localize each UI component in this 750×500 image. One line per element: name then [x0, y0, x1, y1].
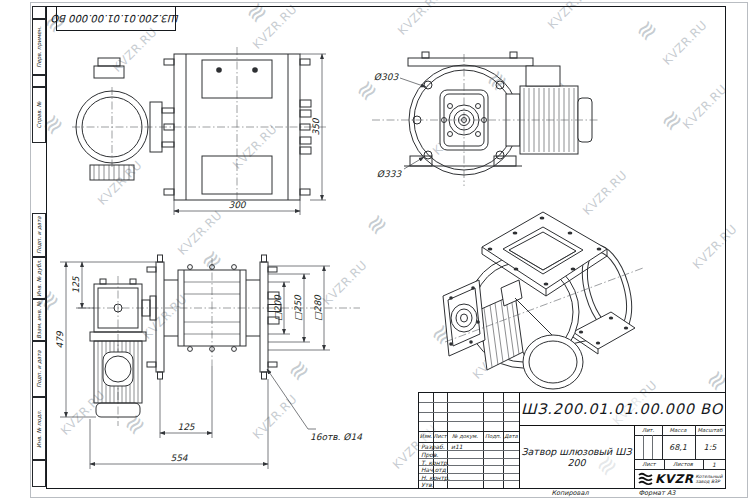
margin-cell-podp-data-1: Подп. и дата [32, 213, 46, 257]
brand-name: KVZR [655, 472, 694, 486]
margin-cell-inv-dubl: Инв. № дубл. [32, 257, 46, 299]
dim-bolt-square-250: □250 [293, 294, 303, 321]
gearmotor-side [76, 58, 174, 180]
dim-flange-square-280: □280 [313, 294, 323, 321]
corner-stamp-number: ШЗ.200.01.01.00.000 ВО [52, 13, 179, 24]
format-label: Формат А3 [638, 489, 675, 497]
isometric-view-drawing [415, 192, 650, 392]
margin-cell-sprav-no: Справ. № [32, 87, 46, 143]
motor-end-view [506, 66, 592, 154]
dim-inner-diameter: Ø303 [374, 72, 400, 82]
title-block: Изм. Лист № докум. Подп. Дата Разраб. и1… [418, 392, 726, 489]
brand-subtitle: Котельный завод ВЗР [696, 474, 723, 484]
gearmotor-front [90, 279, 156, 417]
title-block-doc-number: ШЗ.200.01.01.00.000 ВО [519, 393, 725, 425]
copied-label: Копировал [551, 489, 588, 497]
role-razrab-doc: и11 [451, 443, 463, 450]
drawing-sheet: KVZR.RUKVZR.RUKVZR.RUKVZR.RUKVZR.RUKVZR.… [0, 0, 750, 500]
scale-value: 1:5 [704, 443, 717, 452]
margin-cell-empty [32, 460, 46, 487]
end-view-dimensions: Ø303 Ø333 [374, 72, 426, 179]
mass-value: 68,1 [669, 443, 687, 452]
product-title: Затвор шлюзовый ШЗ 200 [519, 425, 634, 488]
role-razrab: Разраб. [421, 443, 445, 450]
dim-gear-offset-125: 125 [71, 275, 81, 293]
dim-width-300: 300 [228, 200, 246, 210]
sheets-value: 1 [712, 461, 716, 468]
corner-stamp: ШЗ.200.01.01.00.000 ВО [56, 6, 176, 31]
dim-offset-125: 125 [177, 422, 195, 432]
col-sign: Подп. [485, 433, 501, 439]
margin-cell-vzam-inv: Взам. инв. № [32, 299, 46, 341]
side-view-dimensions: 300 350 [174, 54, 326, 215]
front-view-drawing: 125 479 125 554 □200 □250 □280 16отв. Ø1… [48, 236, 378, 478]
col-date: Дата [504, 433, 518, 439]
centerlines [78, 258, 360, 426]
lit-label: Лит. [642, 427, 654, 433]
dim-height-479: 479 [55, 330, 65, 348]
brand-cell: KVZR Котельный завод ВЗР [634, 469, 725, 488]
scale-label: Масштаб [697, 427, 722, 433]
side-view-drawing: 300 350 [58, 44, 358, 218]
dim-width-554: 554 [170, 453, 187, 463]
dim-outer-diameter: Ø333 [377, 169, 403, 179]
col-doc: № докум. [452, 433, 478, 439]
margin-cell-empty [32, 75, 46, 87]
col-izm: Изм. [420, 433, 432, 439]
sheets-label: Листов [673, 461, 693, 467]
role-tkontr: Т. контр. [421, 459, 449, 466]
dim-opening-200: □200 [273, 294, 283, 321]
role-prov: Пров. [421, 451, 438, 458]
front-view-dimensions: 125 479 125 554 □200 □250 □280 16отв. Ø1… [55, 262, 362, 469]
valve-body-front [147, 255, 281, 379]
role-nachotd: Нач.отд [421, 466, 446, 473]
holes-note: 16отв. Ø14 [310, 432, 362, 442]
role-utv: Утв. [421, 481, 434, 488]
margin-cell-perv-primen: Перв. примен. [32, 19, 46, 75]
margin-cell-inv-podl: Инв. № подл. [32, 397, 46, 460]
margin-cell-podp-data-2: Подп. и дата [32, 341, 46, 397]
kvzr-logo-icon [638, 472, 653, 486]
dim-height-350: 350 [311, 117, 321, 135]
col-list: Лист [433, 433, 446, 439]
sheet-label: Лист [642, 461, 655, 467]
role-nkontr: Н. контр. [421, 474, 450, 481]
mass-label: Масса [670, 427, 687, 433]
margin-cell-empty [32, 6, 46, 19]
